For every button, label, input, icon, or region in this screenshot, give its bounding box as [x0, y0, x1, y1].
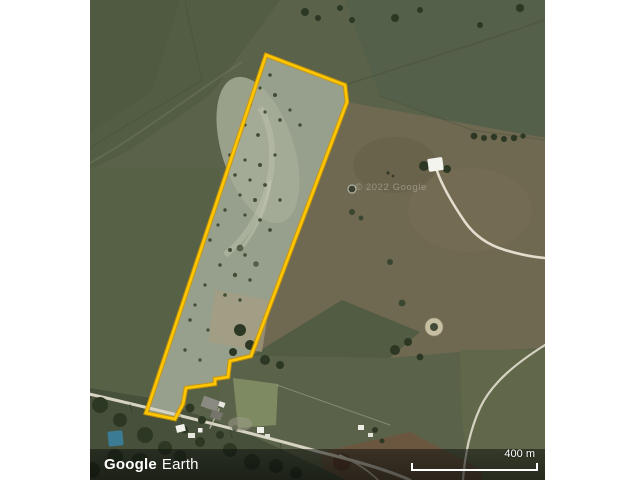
google-earth-logo: GoogleEarth — [104, 457, 199, 472]
satellite-imagery — [90, 0, 545, 480]
google-earth-screenshot: © 2022 Google GoogleEarth 400 m — [0, 0, 640, 480]
bottom-overlay-bar: GoogleEarth 400 m — [90, 449, 545, 480]
copyright-watermark: © 2022 Google — [355, 182, 427, 193]
scale-bar: 400 m — [411, 449, 538, 471]
logo-earth-text: Earth — [162, 456, 199, 473]
house — [427, 157, 444, 172]
scale-bar-line — [411, 463, 538, 471]
scale-bar-label: 400 m — [411, 449, 538, 460]
logo-google-text: Google — [104, 456, 157, 473]
pond — [107, 430, 123, 446]
satellite-map[interactable]: © 2022 Google GoogleEarth 400 m — [90, 0, 545, 480]
